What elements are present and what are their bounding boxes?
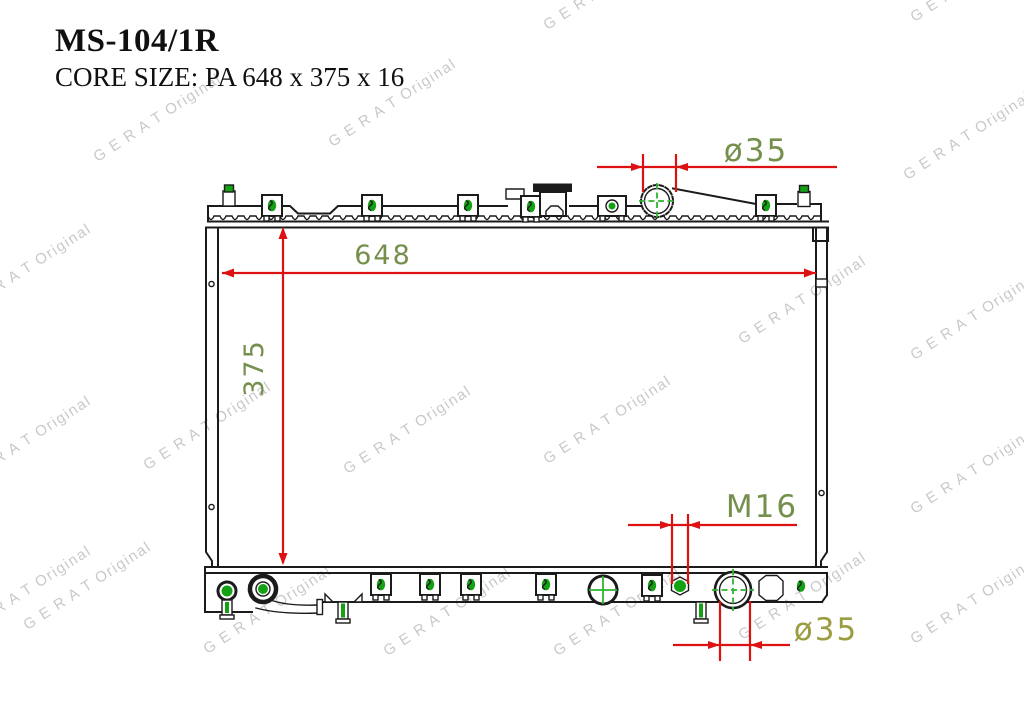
square-port <box>759 576 783 601</box>
title-block: MS-104/1R CORE SIZE: PA 648 x 375 x 16 <box>55 24 404 93</box>
top-bracket-round-clip <box>598 196 626 221</box>
dimension-top-neck: ø35 <box>597 133 837 192</box>
bottom-clip <box>797 580 805 592</box>
hose-flange-icon <box>250 576 276 602</box>
radiator-diagram: 648 375 ø35 M16 ø35 <box>0 0 1024 724</box>
dimension-core-height: 375 <box>239 227 288 565</box>
bottom-stud <box>336 602 350 623</box>
top-bracket-clip <box>262 195 282 221</box>
core-size-label: CORE SIZE: PA 648 x 375 x 16 <box>55 62 404 93</box>
bottom-neck-icon <box>712 569 754 611</box>
top-neck-label: ø35 <box>724 133 788 169</box>
top-left-mounting-pin <box>223 185 235 206</box>
bottom-tank <box>205 567 827 623</box>
core-width-label: 648 <box>354 240 412 271</box>
drain-thread-label: M16 <box>726 489 798 525</box>
top-right-mounting-pin <box>798 186 810 207</box>
bottom-bracket-clip <box>420 574 440 600</box>
core-fin-serration <box>208 216 820 220</box>
technical-drawing-page: G E R A T OriginalG E R A T OriginalG E … <box>0 0 1024 724</box>
bottom-bracket-clip <box>371 574 391 600</box>
bottom-bracket-clip <box>461 574 481 600</box>
bottom-stud <box>694 602 708 623</box>
toothed-mount-icon <box>589 576 617 604</box>
top-bracket-clip <box>458 195 478 221</box>
part-number: MS-104/1R <box>55 24 404 59</box>
dimension-core-width: 648 <box>222 240 816 278</box>
top-tank <box>208 183 828 241</box>
filler-neck-icon <box>639 183 675 219</box>
m16-fitting-icon <box>672 577 689 595</box>
bottom-bracket-clip <box>536 574 556 600</box>
core-height-label: 375 <box>239 339 270 397</box>
drain-petcock-icon <box>218 582 236 619</box>
bottom-bracket-clip <box>642 575 662 601</box>
bottom-neck-label: ø35 <box>794 612 858 648</box>
dimension-drain-thread: M16 <box>628 489 798 584</box>
top-bracket-clip <box>362 195 382 221</box>
